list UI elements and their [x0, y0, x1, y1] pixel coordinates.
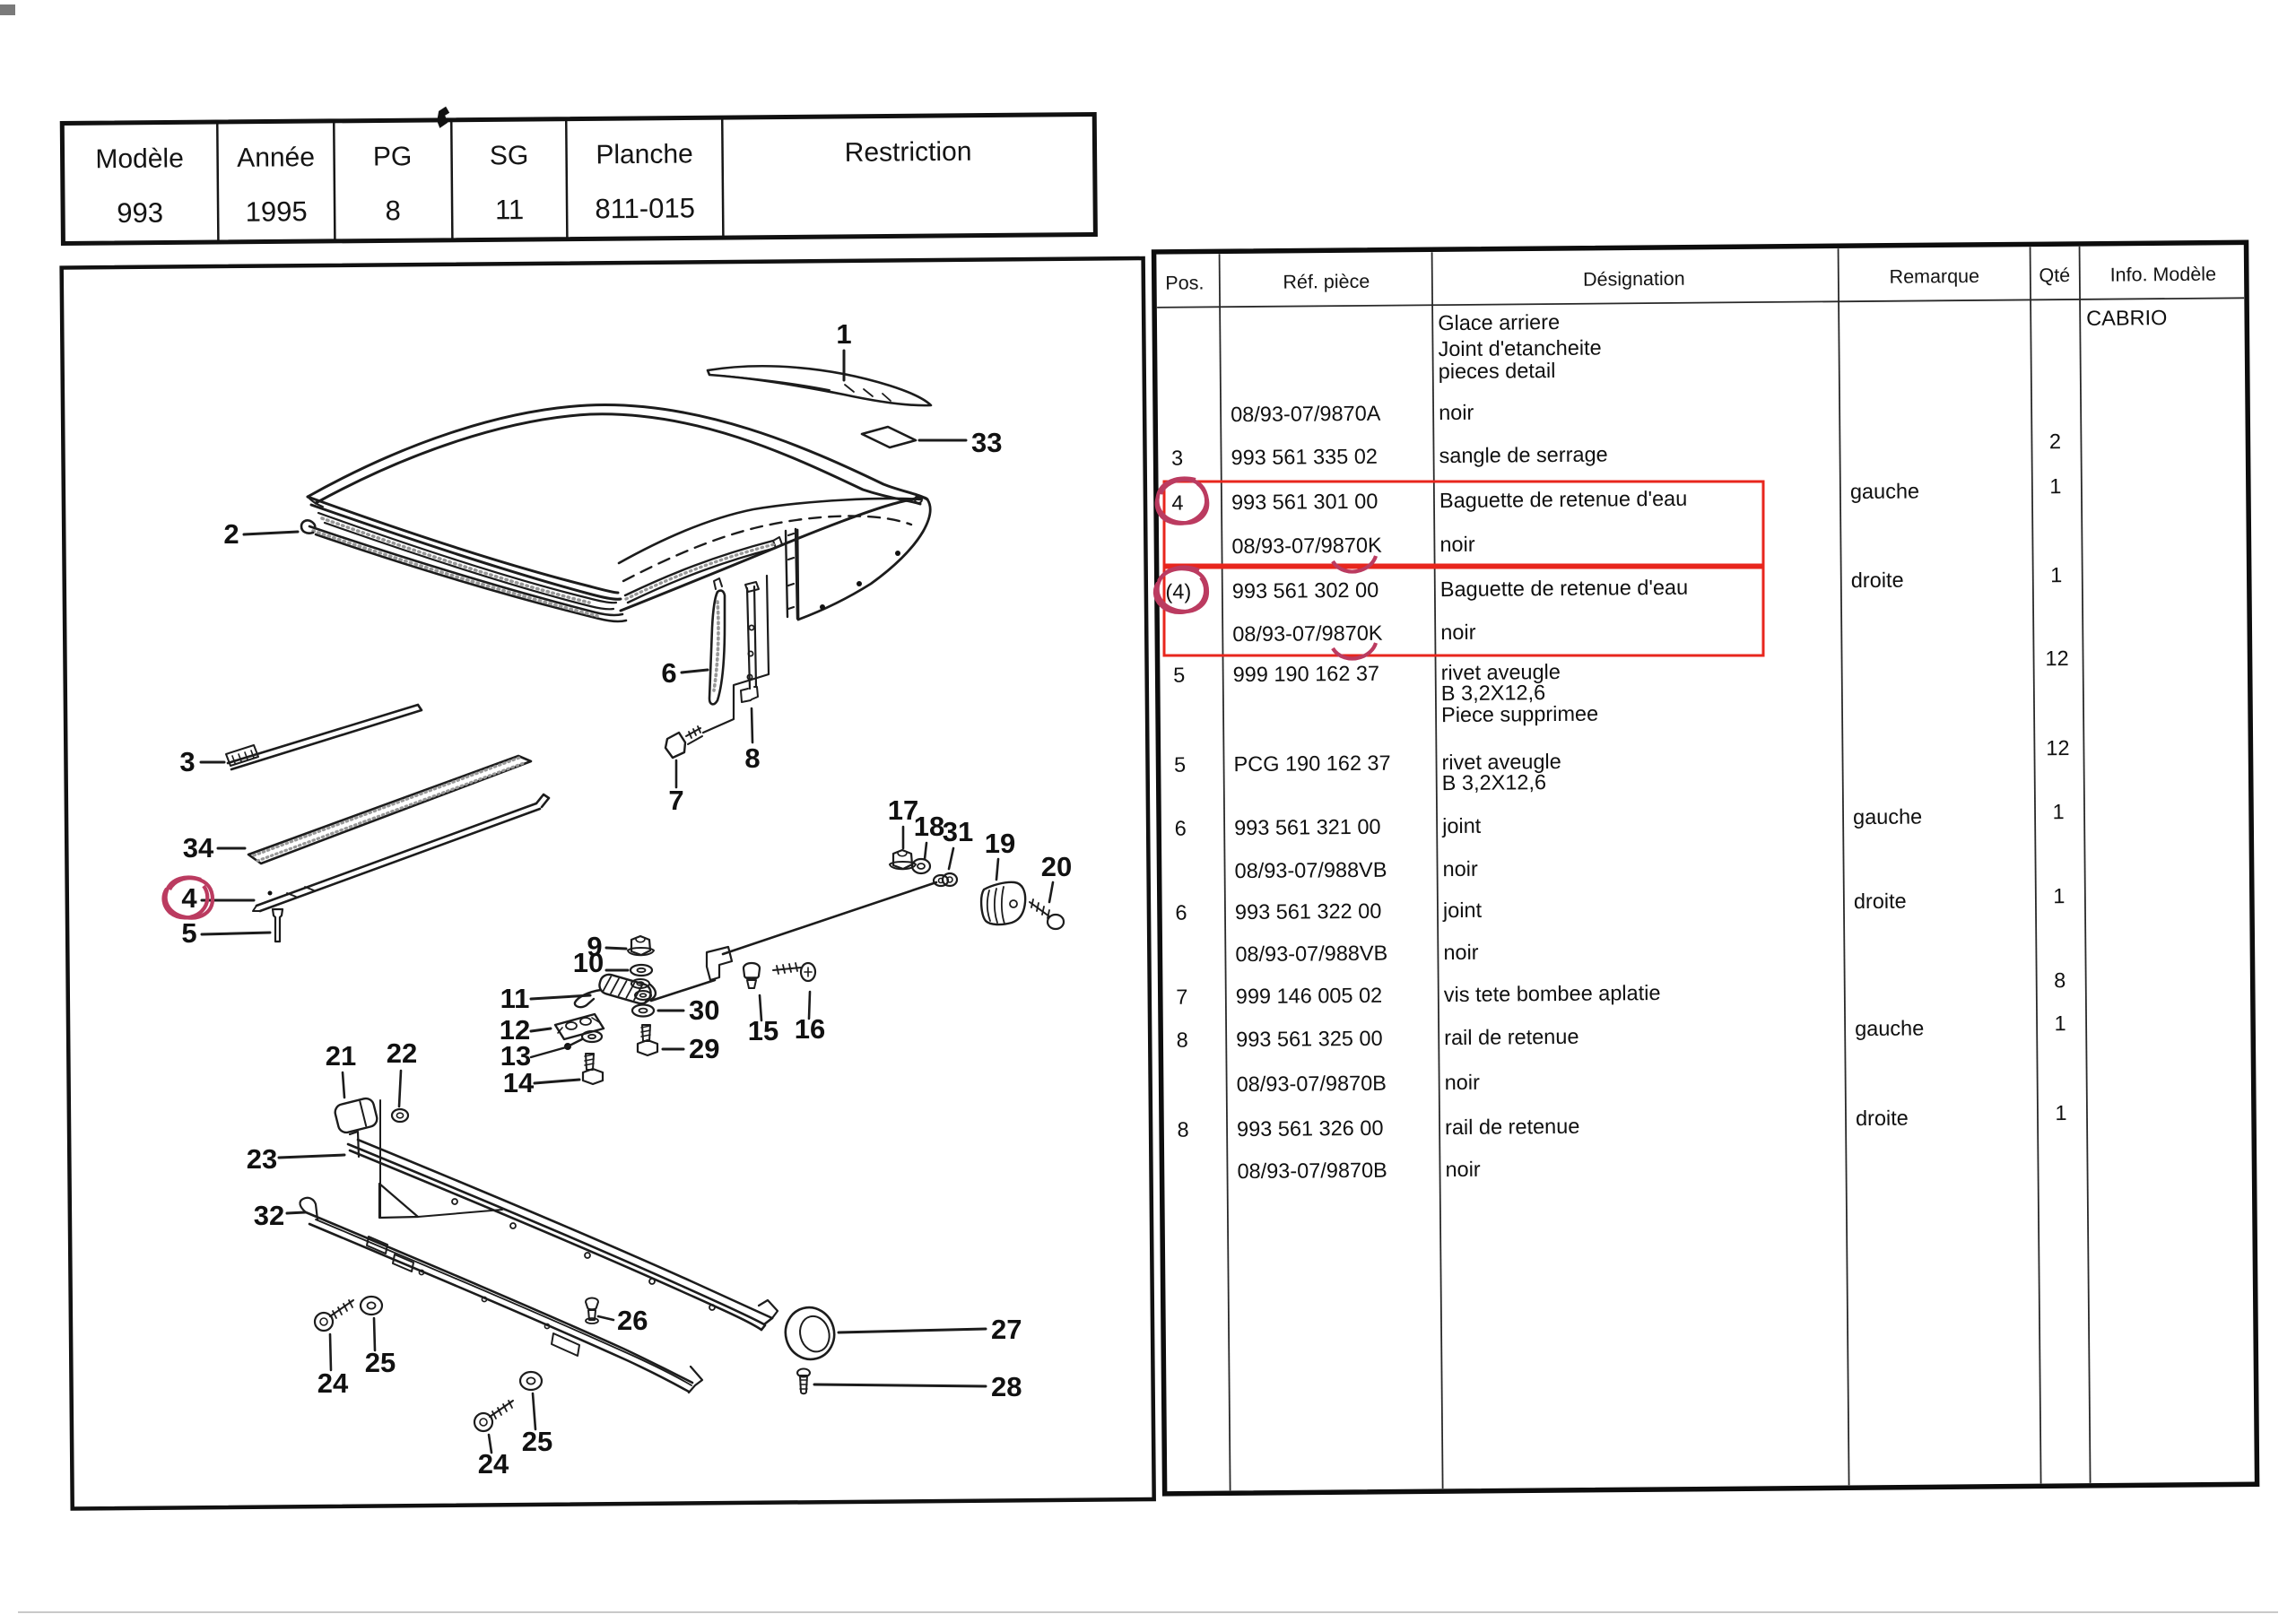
svg-text:8: 8: [1177, 1118, 1188, 1141]
svg-text:08/93-07/9870B: 08/93-07/9870B: [1237, 1072, 1387, 1096]
svg-text:Désignation: Désignation: [1583, 268, 1685, 291]
svg-text:droite: droite: [1851, 568, 1904, 593]
svg-text:993 561 321 00: 993 561 321 00: [1234, 815, 1381, 839]
svg-text:B 3,2X12,6: B 3,2X12,6: [1441, 681, 1546, 705]
svg-text:noir: noir: [1439, 533, 1475, 556]
svg-text:12: 12: [2045, 647, 2068, 670]
svg-text:1: 1: [2052, 800, 2064, 823]
svg-text:joint: joint: [1441, 814, 1482, 838]
svg-text:noir: noir: [1445, 1158, 1481, 1181]
svg-text:3: 3: [1171, 447, 1183, 470]
svg-text:rail de retenue: rail de retenue: [1445, 1115, 1579, 1139]
svg-text:8: 8: [1177, 1028, 1188, 1052]
svg-text:7: 7: [668, 785, 683, 816]
svg-text:Pos.: Pos.: [1165, 272, 1204, 293]
svg-text:Baguette de retenue d'eau: Baguette de retenue d'eau: [1440, 576, 1688, 601]
svg-text:08/93-07/9870K: 08/93-07/9870K: [1231, 534, 1382, 558]
svg-text:11: 11: [500, 983, 530, 1014]
svg-text:Planche: Planche: [596, 139, 693, 169]
svg-text:Modèle: Modèle: [95, 143, 184, 174]
svg-text:Réf. pièce: Réf. pièce: [1283, 271, 1370, 293]
svg-text:10: 10: [573, 947, 604, 978]
svg-text:993 561 302 00: 993 561 302 00: [1232, 578, 1379, 603]
svg-text:993 561 322 00: 993 561 322 00: [1235, 899, 1382, 924]
svg-text:droite: droite: [1856, 1107, 1909, 1131]
svg-text:26: 26: [617, 1305, 648, 1336]
svg-text:1: 1: [2050, 563, 2062, 586]
svg-text:11: 11: [495, 194, 524, 225]
svg-text:31: 31: [943, 816, 973, 847]
svg-text:4: 4: [1171, 491, 1183, 515]
svg-text:gauche: gauche: [1850, 479, 1919, 503]
svg-text:2: 2: [2049, 430, 2061, 453]
svg-text:noir: noir: [1440, 621, 1476, 644]
svg-text:Baguette de retenue d'eau: Baguette de retenue d'eau: [1439, 487, 1687, 512]
svg-text:joint: joint: [1442, 898, 1483, 922]
svg-text:B 3,2X12,6: B 3,2X12,6: [1442, 770, 1547, 794]
svg-text:6: 6: [1175, 901, 1187, 924]
svg-text:5: 5: [1174, 753, 1186, 777]
svg-text:noir: noir: [1445, 1071, 1481, 1094]
svg-text:15: 15: [748, 1015, 778, 1046]
svg-text:SG: SG: [490, 141, 529, 170]
svg-text:Année: Année: [237, 143, 315, 173]
svg-text:3: 3: [179, 746, 195, 777]
svg-text:32: 32: [254, 1200, 284, 1231]
svg-text:CABRIO: CABRIO: [2086, 306, 2167, 330]
svg-text:08/93-07/988VB: 08/93-07/988VB: [1234, 858, 1387, 882]
svg-text:08/93-07/9870B: 08/93-07/9870B: [1237, 1159, 1387, 1183]
svg-text:30: 30: [689, 994, 719, 1026]
svg-text:gauche: gauche: [1853, 804, 1922, 829]
svg-text:7: 7: [1176, 985, 1187, 1009]
svg-text:sangle de serrage: sangle de serrage: [1439, 443, 1607, 468]
svg-text:6: 6: [661, 657, 676, 689]
svg-text:Restriction: Restriction: [845, 137, 972, 168]
svg-text:noir: noir: [1439, 401, 1474, 424]
svg-text:1: 1: [836, 318, 851, 350]
svg-text:1: 1: [2049, 474, 2061, 498]
svg-text:pieces detail: pieces detail: [1439, 359, 1556, 383]
svg-text:08/93-07/988VB: 08/93-07/988VB: [1235, 942, 1387, 966]
svg-text:19: 19: [985, 828, 1015, 859]
svg-text:08/93-07/9870K: 08/93-07/9870K: [1232, 621, 1383, 646]
svg-text:34: 34: [183, 832, 214, 864]
svg-text:25: 25: [365, 1347, 396, 1378]
svg-text:22: 22: [387, 1037, 417, 1069]
svg-text:4: 4: [181, 882, 197, 914]
svg-text:25: 25: [522, 1426, 552, 1457]
svg-text:12: 12: [2046, 736, 2069, 759]
svg-text:18: 18: [914, 811, 944, 842]
svg-text:8: 8: [385, 195, 401, 226]
svg-text:PCG 190 162 37: PCG 190 162 37: [1233, 751, 1390, 777]
svg-text:1: 1: [2054, 1011, 2066, 1035]
svg-text:5: 5: [1173, 664, 1185, 687]
svg-text:droite: droite: [1854, 890, 1907, 914]
svg-text:993: 993: [117, 197, 163, 229]
svg-text:33: 33: [971, 427, 1002, 458]
svg-text:999 190 162 37: 999 190 162 37: [1233, 662, 1380, 686]
svg-text:27: 27: [991, 1314, 1022, 1345]
svg-text:1: 1: [2053, 884, 2065, 907]
svg-text:993 561 326 00: 993 561 326 00: [1237, 1116, 1384, 1141]
svg-text:Qté: Qté: [2039, 265, 2070, 286]
svg-text:8: 8: [2054, 968, 2066, 992]
svg-text:5: 5: [181, 917, 196, 949]
svg-text:14: 14: [503, 1067, 535, 1098]
svg-text:24: 24: [317, 1367, 349, 1399]
svg-text:1995: 1995: [245, 195, 307, 228]
svg-text:811-015: 811-015: [595, 192, 695, 224]
svg-text:vis tete bombee aplatie: vis tete bombee aplatie: [1444, 981, 1661, 1006]
svg-text:rail de retenue: rail de retenue: [1444, 1025, 1578, 1049]
svg-text:23: 23: [247, 1143, 277, 1175]
svg-text:Piece supprimee: Piece supprimee: [1441, 702, 1598, 727]
svg-text:Glace arriere: Glace arriere: [1438, 310, 1560, 334]
svg-text:noir: noir: [1443, 941, 1479, 964]
svg-text:993 561 301 00: 993 561 301 00: [1231, 490, 1378, 514]
svg-text:noir: noir: [1442, 857, 1478, 881]
svg-text:28: 28: [991, 1371, 1022, 1402]
svg-text:6: 6: [1175, 817, 1187, 840]
svg-text:08/93-07/9870A: 08/93-07/9870A: [1231, 402, 1381, 426]
svg-text:21: 21: [326, 1040, 356, 1072]
svg-text:993 561 325 00: 993 561 325 00: [1236, 1027, 1383, 1051]
svg-text:24: 24: [478, 1448, 509, 1480]
svg-text:(4): (4): [1165, 580, 1191, 603]
svg-text:20: 20: [1041, 851, 1072, 882]
svg-text:2: 2: [223, 518, 239, 550]
svg-text:999 146 005 02: 999 146 005 02: [1236, 984, 1383, 1008]
svg-text:993 561 335 02: 993 561 335 02: [1231, 445, 1378, 469]
svg-text:29: 29: [689, 1033, 719, 1064]
svg-text:Info. Modèle: Info. Modèle: [2110, 264, 2217, 286]
svg-text:Remarque: Remarque: [1890, 265, 1980, 288]
svg-text:Joint d'etancheite: Joint d'etancheite: [1438, 336, 1601, 361]
svg-text:8: 8: [744, 742, 760, 774]
svg-text:gauche: gauche: [1855, 1016, 1924, 1040]
svg-text:1: 1: [2055, 1101, 2066, 1124]
svg-text:PG: PG: [373, 142, 413, 171]
